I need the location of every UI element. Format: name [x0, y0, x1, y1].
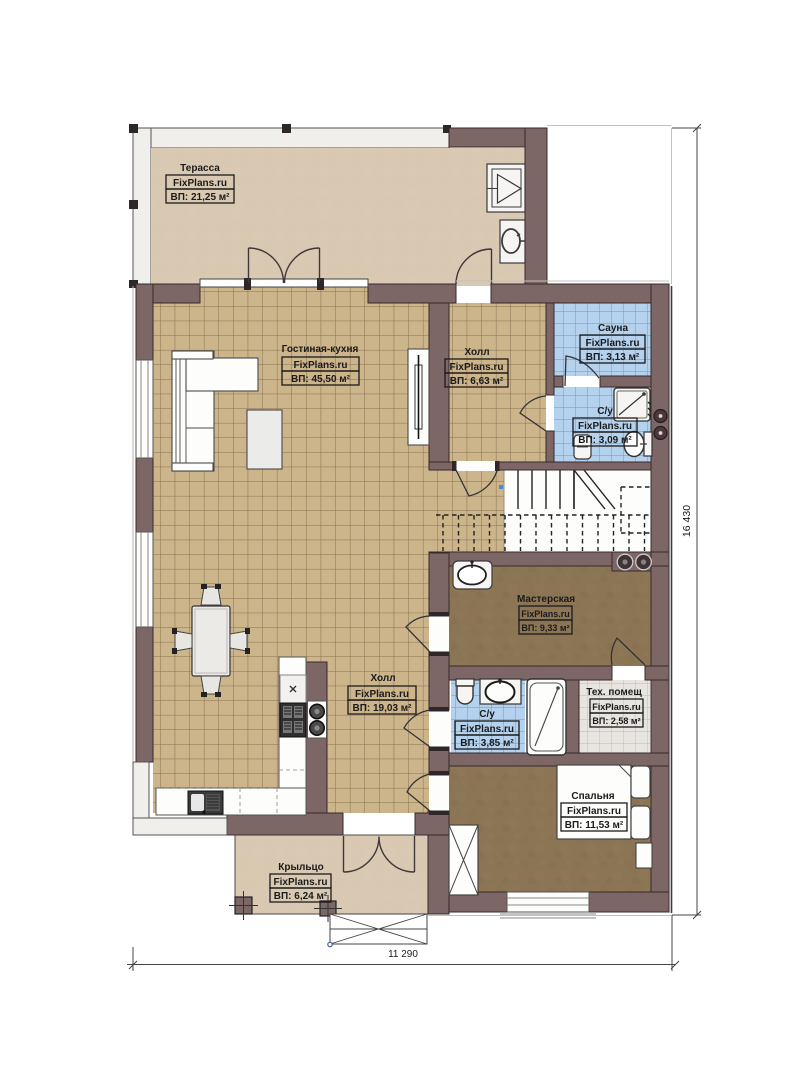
svg-text:Мастерская: Мастерская [517, 594, 575, 605]
svg-text:Холл: Холл [370, 673, 395, 684]
svg-text:FixPlans.ru: FixPlans.ru [578, 421, 632, 432]
svg-text:Тех. помещ: Тех. помещ [586, 687, 642, 698]
svg-text:ВП: 9,33 м²: ВП: 9,33 м² [521, 623, 569, 633]
svg-text:FixPlans.ru: FixPlans.ru [592, 702, 641, 712]
svg-text:ВП: 3,09 м²: ВП: 3,09 м² [578, 435, 632, 446]
svg-text:FixPlans.ru: FixPlans.ru [274, 877, 328, 888]
svg-text:ВП: 6,63 м²: ВП: 6,63 м² [450, 376, 504, 387]
svg-text:FixPlans.ru: FixPlans.ru [521, 609, 570, 619]
svg-text:Гостиная-кухня: Гостиная-кухня [282, 344, 359, 355]
svg-text:FixPlans.ru: FixPlans.ru [586, 338, 640, 349]
svg-text:ВП: 2,58 м²: ВП: 2,58 м² [592, 716, 640, 726]
svg-text:ВП: 6,24 м²: ВП: 6,24 м² [274, 891, 328, 902]
svg-text:ВП: 45,50 м²: ВП: 45,50 м² [291, 374, 351, 385]
svg-text:С/у: С/у [479, 709, 495, 720]
svg-text:16 430: 16 430 [681, 505, 693, 537]
svg-text:Терасса: Терасса [180, 163, 220, 174]
svg-text:Холл: Холл [464, 347, 489, 358]
svg-text:FixPlans.ru: FixPlans.ru [450, 362, 504, 373]
svg-text:FixPlans.ru: FixPlans.ru [294, 360, 348, 371]
svg-text:ВП: 21,25 м²: ВП: 21,25 м² [170, 192, 230, 203]
svg-text:11 290: 11 290 [388, 949, 418, 960]
svg-text:FixPlans.ru: FixPlans.ru [355, 689, 409, 700]
svg-text:Спальня: Спальня [571, 791, 614, 802]
svg-text:ВП: 19,03 м²: ВП: 19,03 м² [352, 703, 412, 714]
svg-text:С/у: С/у [597, 406, 613, 417]
svg-text:Сауна: Сауна [598, 323, 629, 334]
svg-text:FixPlans.ru: FixPlans.ru [173, 178, 227, 189]
svg-text:ВП: 3,85 м²: ВП: 3,85 м² [460, 738, 514, 749]
svg-text:ВП: 3,13 м²: ВП: 3,13 м² [586, 352, 640, 363]
svg-text:ВП: 11,53 м²: ВП: 11,53 м² [565, 820, 624, 831]
svg-text:FixPlans.ru: FixPlans.ru [567, 806, 621, 817]
svg-text:Крыльцо: Крыльцо [278, 862, 324, 873]
svg-text:FixPlans.ru: FixPlans.ru [460, 724, 514, 735]
